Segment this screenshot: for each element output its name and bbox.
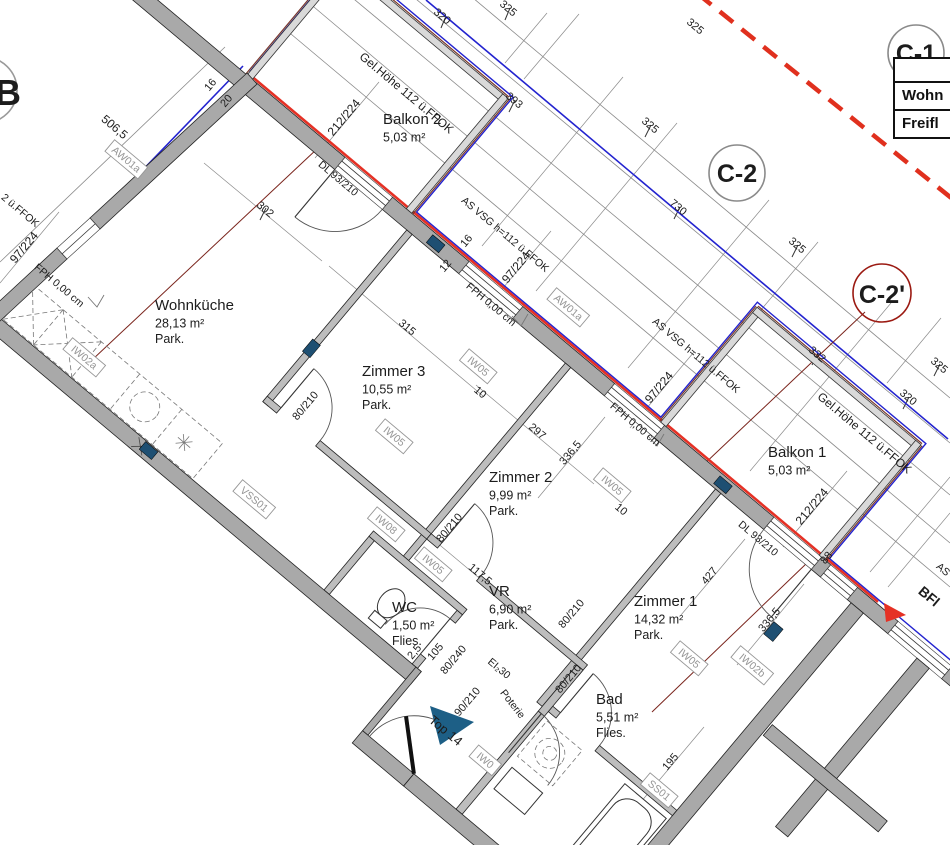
wall-tag-iw02b: IW02b [731, 646, 774, 685]
wall-tag-aw01a: AW01a [105, 140, 148, 179]
svg-text:Park.: Park. [155, 332, 184, 346]
svg-text:Zimmer 3: Zimmer 3 [362, 363, 425, 380]
legend-row-empty [895, 59, 950, 81]
dimension-label: 10 [612, 501, 629, 518]
svg-text:Park.: Park. [634, 628, 663, 642]
annotation-as: AS [934, 561, 950, 579]
svg-text:302: 302 [254, 199, 276, 220]
svg-text:Park.: Park. [362, 398, 391, 412]
balcony1-parapet [660, 305, 924, 561]
svg-text:90/210: 90/210 [452, 685, 483, 718]
svg-text:10,55 m²: 10,55 m² [362, 383, 411, 397]
svg-text:97/224: 97/224 [7, 229, 42, 266]
room-label-balkon-1: Balkon 15,03 m² [768, 444, 826, 478]
room-label-wc: WC1,50 m²Flies. [392, 599, 434, 648]
svg-text:325: 325 [497, 0, 519, 19]
section-marker-c2: C-2 [709, 145, 765, 201]
legend-row-freifl: Freifl [895, 109, 950, 137]
svg-text:506,5: 506,5 [99, 112, 131, 142]
annotation-2-ffok: 2 ü.FFOK [0, 191, 41, 229]
svg-text:Zimmer 1: Zimmer 1 [634, 593, 697, 610]
svg-text:336,5: 336,5 [557, 439, 584, 468]
wall-tag-iw05: IW05 [375, 419, 413, 454]
svg-text:Wohnküche: Wohnküche [155, 297, 234, 314]
svg-text:427: 427 [699, 565, 720, 587]
svg-text:2 ü.FFOK: 2 ü.FFOK [0, 191, 41, 229]
svg-text:325: 325 [928, 355, 950, 376]
svg-text:B: B [0, 72, 21, 113]
wall-tag-aw01a: AW01a [547, 288, 590, 327]
dimension-label: 195 [660, 751, 681, 773]
annotation-ei-30: EI₂30 [485, 656, 513, 682]
dimension-label: 320 [431, 6, 453, 27]
dimension-label: 80/210 [290, 389, 321, 422]
room-label-vr: VR6,90 m²Park. [489, 583, 531, 632]
dimension-label: 212/224 [793, 485, 832, 527]
svg-text:AS: AS [934, 561, 950, 579]
dimension-label: 16 [458, 233, 475, 250]
legend-row-wohn: Wohn [895, 81, 950, 109]
svg-text:212/224: 212/224 [793, 485, 832, 527]
svg-text:212/224: 212/224 [325, 96, 364, 138]
svg-text:C-2': C-2' [859, 281, 905, 309]
svg-text:WC: WC [392, 599, 417, 616]
room-label-zimmer-2: Zimmer 29,99 m²Park. [489, 469, 552, 518]
svg-text:1,50 m²: 1,50 m² [392, 619, 434, 633]
dimension-label: 90/210 [452, 685, 483, 718]
dimension-label: 325 [928, 355, 950, 376]
dimension-label: 325 [684, 16, 706, 37]
svg-text:16: 16 [458, 233, 475, 250]
room-label-bad: Bad5,51 m²Flies. [596, 691, 638, 740]
svg-text:FPH 0,00 cm: FPH 0,00 cm [32, 261, 87, 310]
floorplan-stage: Wohnküche28,13 m²Park.Zimmer 310,55 m²Pa… [0, 0, 950, 845]
wall-tag-iw05: IW05 [459, 349, 497, 384]
dimension-label: 297 [526, 421, 548, 442]
svg-text:6,90 m²: 6,90 m² [489, 603, 531, 617]
dimension-label: 315 [396, 317, 418, 338]
dimension-ticks [260, 8, 940, 409]
svg-text:10: 10 [612, 501, 629, 518]
dimension-label: 97/224 [7, 229, 42, 266]
dimension-label: 506,5 [99, 112, 131, 142]
wall-tag-iw05: IW05 [593, 468, 631, 503]
legend-table: Wohn Freifl [893, 57, 950, 139]
svg-text:5,03 m²: 5,03 m² [383, 131, 425, 145]
section-marker-b: B [0, 57, 21, 123]
room-label-wohnküche: Wohnküche28,13 m²Park. [155, 297, 234, 346]
svg-text:297: 297 [526, 421, 548, 442]
floor-plan-drawing: Wohnküche28,13 m²Park.Zimmer 310,55 m²Pa… [0, 0, 950, 845]
svg-text:BFl: BFl [915, 583, 943, 610]
svg-text:Park.: Park. [489, 618, 518, 632]
svg-text:Zimmer 2: Zimmer 2 [489, 469, 552, 486]
svg-text:10: 10 [471, 384, 488, 401]
svg-text:320: 320 [431, 6, 453, 27]
svg-text:325: 325 [639, 115, 661, 136]
annotation-poterie: Poterie [497, 687, 527, 721]
svg-text:C-2: C-2 [717, 160, 757, 188]
section-lines [92, 148, 865, 712]
dimension-label: 80/210 [556, 597, 587, 630]
dimension-label: 320 [897, 387, 919, 408]
svg-text:195: 195 [660, 751, 681, 773]
svg-text:730: 730 [667, 197, 689, 218]
svg-text:Park.: Park. [489, 504, 518, 518]
dimension-lines [0, 0, 950, 803]
svg-text:315: 315 [396, 317, 418, 338]
annotation-bfl: BFl [915, 583, 943, 610]
dimension-label: 427 [699, 565, 720, 587]
room-label-zimmer-3: Zimmer 310,55 m²Park. [362, 363, 425, 412]
dimension-label: 16 [202, 77, 219, 94]
svg-text:80/210: 80/210 [290, 389, 321, 422]
wall-tag-vss01: VSS01 [233, 480, 276, 519]
svg-text:325: 325 [684, 16, 706, 37]
svg-text:97/224: 97/224 [642, 369, 677, 406]
svg-text:5,51 m²: 5,51 m² [596, 711, 638, 725]
svg-text:9,99 m²: 9,99 m² [489, 489, 531, 503]
svg-text:Flies.: Flies. [596, 726, 626, 740]
dimension-label: 212/224 [325, 96, 364, 138]
wall-tag-iw05: IW05 [670, 641, 708, 676]
svg-text:393: 393 [503, 90, 525, 111]
svg-text:320: 320 [897, 387, 919, 408]
dimension-label: 10 [471, 384, 488, 401]
svg-text:14,32 m²: 14,32 m² [634, 613, 683, 627]
left-exterior-wall [0, 73, 257, 321]
svg-text:Bad: Bad [596, 691, 623, 708]
facade-wall [129, 0, 950, 706]
svg-text:Balkon 1: Balkon 1 [768, 444, 826, 461]
svg-text:EI₂30: EI₂30 [485, 656, 513, 682]
room-label-zimmer-1: Zimmer 114,32 m²Park. [634, 593, 697, 642]
annotation-fph-0-00-cm: FPH 0,00 cm [32, 261, 87, 310]
svg-text:16: 16 [202, 77, 219, 94]
dimension-label: 325 [786, 235, 808, 256]
labels-layer: Wohnküche28,13 m²Park.Zimmer 310,55 m²Pa… [0, 0, 950, 808]
dimension-label: 730 [667, 197, 689, 218]
svg-text:VR: VR [489, 583, 510, 600]
svg-text:5,03 m²: 5,03 m² [768, 464, 810, 478]
dimension-label: 336,5 [557, 439, 584, 468]
svg-text:80/210: 80/210 [556, 597, 587, 630]
dimension-label: 302 [254, 199, 276, 220]
dimension-label: 325 [497, 0, 519, 19]
svg-text:Poterie: Poterie [497, 687, 527, 721]
dimension-label: 97/224 [642, 369, 677, 406]
svg-text:325: 325 [786, 235, 808, 256]
dimension-label: 393 [503, 90, 525, 111]
svg-text:28,13 m²: 28,13 m² [155, 317, 204, 331]
dimension-label: 325 [639, 115, 661, 136]
